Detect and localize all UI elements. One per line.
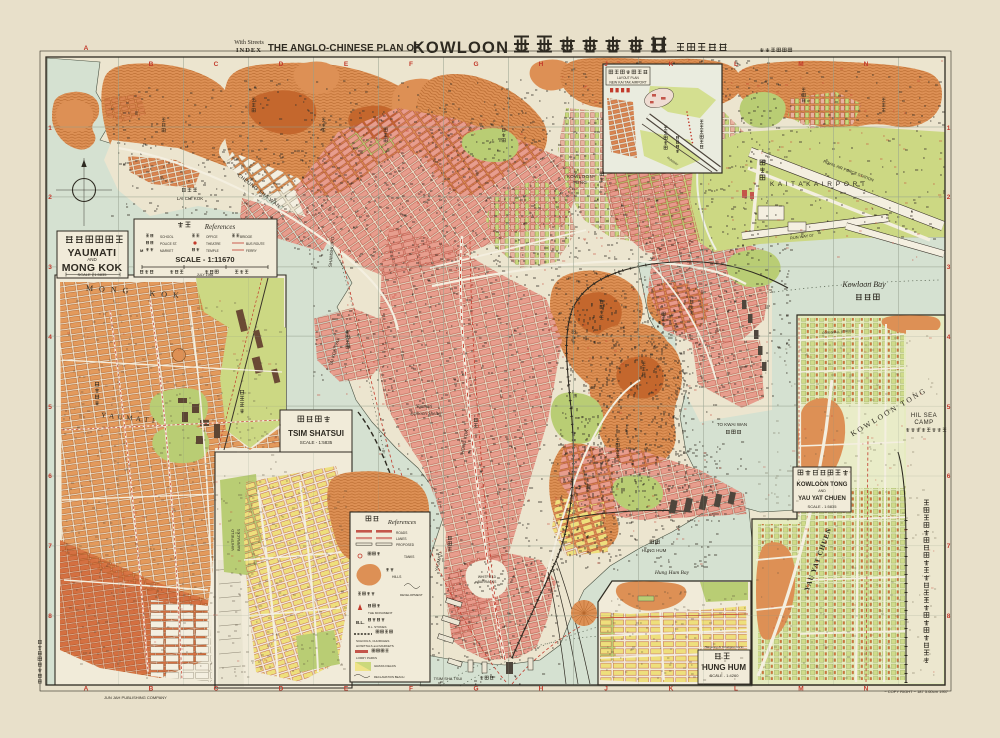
svg-text:4: 4: [48, 334, 52, 341]
svg-text:4: 4: [947, 334, 951, 341]
svg-text:SCALE - 1:5835: SCALE - 1:5835: [808, 504, 838, 509]
svg-text:SCALE - 1:5835: SCALE - 1:5835: [300, 440, 333, 445]
svg-text:2: 2: [48, 194, 52, 201]
svg-text:B: B: [149, 61, 154, 68]
svg-text:F: F: [409, 61, 413, 68]
svg-text:GRASS FIELDS: GRASS FIELDS: [374, 664, 396, 668]
svg-text:KOWLOON TONG: KOWLOON TONG: [797, 482, 848, 488]
svg-text:KOWLOON: KOWLOON: [413, 39, 509, 57]
svg-text:1: 1: [947, 125, 951, 132]
svg-text:6: 6: [947, 473, 951, 480]
svg-text:L: L: [734, 686, 738, 693]
svg-text:HIL SEA: HIL SEA: [911, 413, 937, 419]
svg-text:TSIM SHATSUI: TSIM SHATSUI: [288, 429, 344, 438]
svg-text:With Streets: With Streets: [234, 40, 264, 46]
svg-text:HUNG HUM: HUNG HUM: [642, 548, 667, 553]
svg-text:7: 7: [947, 543, 951, 550]
svg-text:HOSPITALS and MARKETS: HOSPITALS and MARKETS: [356, 644, 394, 648]
svg-text:K: K: [669, 686, 674, 693]
svg-text:B.L. STONES: B.L. STONES: [368, 625, 386, 629]
svg-text:N: N: [864, 686, 869, 693]
svg-text:JUN JAH PUBLISHING COMPANY: JUN JAH PUBLISHING COMPANY: [104, 695, 167, 700]
svg-text:Hongkong & Whampoa Docks: Hongkong & Whampoa Docks: [703, 645, 744, 649]
svg-text:TSIM SHA TSUI: TSIM SHA TSUI: [434, 676, 463, 681]
svg-text:References: References: [204, 223, 236, 231]
svg-text:8: 8: [48, 613, 52, 620]
svg-text:E: E: [344, 61, 349, 68]
svg-text:THE ANGLO-CHINESE PLAN OF: THE ANGLO-CHINESE PLAN OF: [268, 43, 420, 54]
svg-text:B.L.: B.L.: [356, 620, 365, 625]
svg-text:References: References: [387, 519, 417, 526]
svg-text:M: M: [798, 61, 803, 68]
svg-text:THE MONUMENT: THE MONUMENT: [368, 611, 393, 615]
svg-text:CAMP: CAMP: [914, 420, 933, 426]
svg-text:SCHOOL: SCHOOL: [160, 235, 174, 239]
svg-text:THEATRE: THEATRE: [206, 242, 221, 246]
svg-text:G: G: [473, 61, 478, 68]
svg-text:5: 5: [48, 404, 52, 411]
svg-text:SCALE - 1:4260: SCALE - 1:4260: [710, 673, 740, 678]
svg-text:D: D: [279, 686, 284, 693]
svg-text:MARKET: MARKET: [160, 249, 173, 253]
svg-text:KOWLOON: KOWLOON: [567, 174, 593, 179]
svg-text:6: 6: [48, 473, 52, 480]
svg-text:~ COPY RIGHT ~ 187 5.60cm 195: ~ COPY RIGHT ~ 187 5.60cm 1957: [884, 689, 948, 694]
svg-text:D: D: [279, 61, 284, 68]
svg-text:LAYOUT PLAN: LAYOUT PLAN: [617, 76, 639, 80]
svg-text:PROPOSED: PROPOSED: [396, 543, 415, 547]
svg-text:TEMPLE: TEMPLE: [206, 249, 219, 253]
svg-text:C: C: [214, 686, 219, 693]
svg-text:LORRY PARKS: LORRY PARKS: [356, 656, 377, 660]
svg-text:B: B: [149, 686, 154, 693]
svg-text:E: E: [344, 686, 349, 693]
svg-text:N: N: [864, 61, 869, 68]
svg-text:YAU YAT CHUEN: YAU YAT CHUEN: [798, 496, 846, 502]
svg-text:INDEX: INDEX: [236, 47, 262, 54]
svg-text:POLICE ST.: POLICE ST.: [160, 242, 177, 246]
svg-text:SCHOOLS, CHURCHES: SCHOOLS, CHURCHES: [356, 639, 389, 643]
svg-text:TANKS: TANKS: [404, 555, 414, 559]
svg-text:ROADS: ROADS: [396, 531, 407, 535]
svg-text:G: G: [473, 686, 478, 693]
svg-text:A: A: [84, 686, 89, 693]
svg-text:8: 8: [947, 613, 951, 620]
svg-text:HUNG HUM: HUNG HUM: [702, 663, 746, 672]
svg-text:HILLS: HILLS: [392, 575, 402, 579]
svg-text:2: 2: [947, 194, 951, 201]
svg-text:RECLAMATION BEACH: RECLAMATION BEACH: [374, 675, 404, 679]
svg-text:3: 3: [48, 264, 52, 271]
svg-text:K A I T A K A I R P O R: K A I T A K A I R P O R T: [770, 181, 866, 188]
svg-text:NEW KAI TAK AIRPORT: NEW KAI TAK AIRPORT: [609, 81, 646, 85]
svg-text:J: J: [604, 61, 608, 68]
svg-text:A: A: [84, 45, 89, 52]
svg-text:7: 7: [48, 543, 52, 550]
svg-text:BRIDGE: BRIDGE: [240, 235, 252, 239]
svg-text:BARRACKS: BARRACKS: [236, 529, 241, 551]
svg-text:F: F: [409, 686, 413, 693]
svg-text:WHITFIELD: WHITFIELD: [478, 575, 497, 579]
svg-text:H: H: [539, 61, 544, 68]
svg-text:J: J: [604, 686, 608, 693]
svg-text:TO KWAI WAN: TO KWAI WAN: [717, 422, 747, 427]
svg-text:JULY 1956: JULY 1956: [197, 273, 214, 277]
svg-text:DEVELOPMENT: DEVELOPMENT: [400, 593, 423, 597]
svg-text:Hung Hum Bay: Hung Hum Bay: [654, 570, 690, 576]
svg-text:BARRACKS: BARRACKS: [478, 580, 497, 584]
svg-text:3: 3: [947, 264, 951, 271]
svg-text:SCALE - 1:5835: SCALE - 1:5835: [78, 272, 108, 277]
svg-text:AND: AND: [818, 489, 826, 493]
svg-text:1: 1: [48, 125, 52, 132]
svg-text:K: K: [669, 61, 674, 68]
svg-text:Yaumati: Yaumati: [416, 405, 433, 410]
svg-text:H: H: [539, 686, 544, 693]
svg-text:WHITFIELD: WHITFIELD: [230, 529, 235, 551]
svg-text:Typhoon Shelter: Typhoon Shelter: [410, 412, 443, 417]
svg-text:BUS ROUTE: BUS ROUTE: [246, 242, 265, 246]
svg-text:OFFICE: OFFICE: [206, 235, 218, 239]
svg-text:LAI CHI KOK: LAI CHI KOK: [177, 196, 204, 201]
svg-text:SCALE - 1:11670: SCALE - 1:11670: [175, 255, 234, 264]
svg-text:FERRY: FERRY: [246, 249, 258, 253]
svg-text:TONG: TONG: [573, 180, 588, 185]
svg-text:LANES: LANES: [396, 537, 406, 541]
svg-text:Kowloon Bay: Kowloon Bay: [841, 280, 886, 289]
svg-text:5: 5: [947, 404, 951, 411]
svg-text:M: M: [798, 686, 803, 693]
svg-text:L: L: [734, 61, 738, 68]
svg-text:C: C: [214, 61, 219, 68]
